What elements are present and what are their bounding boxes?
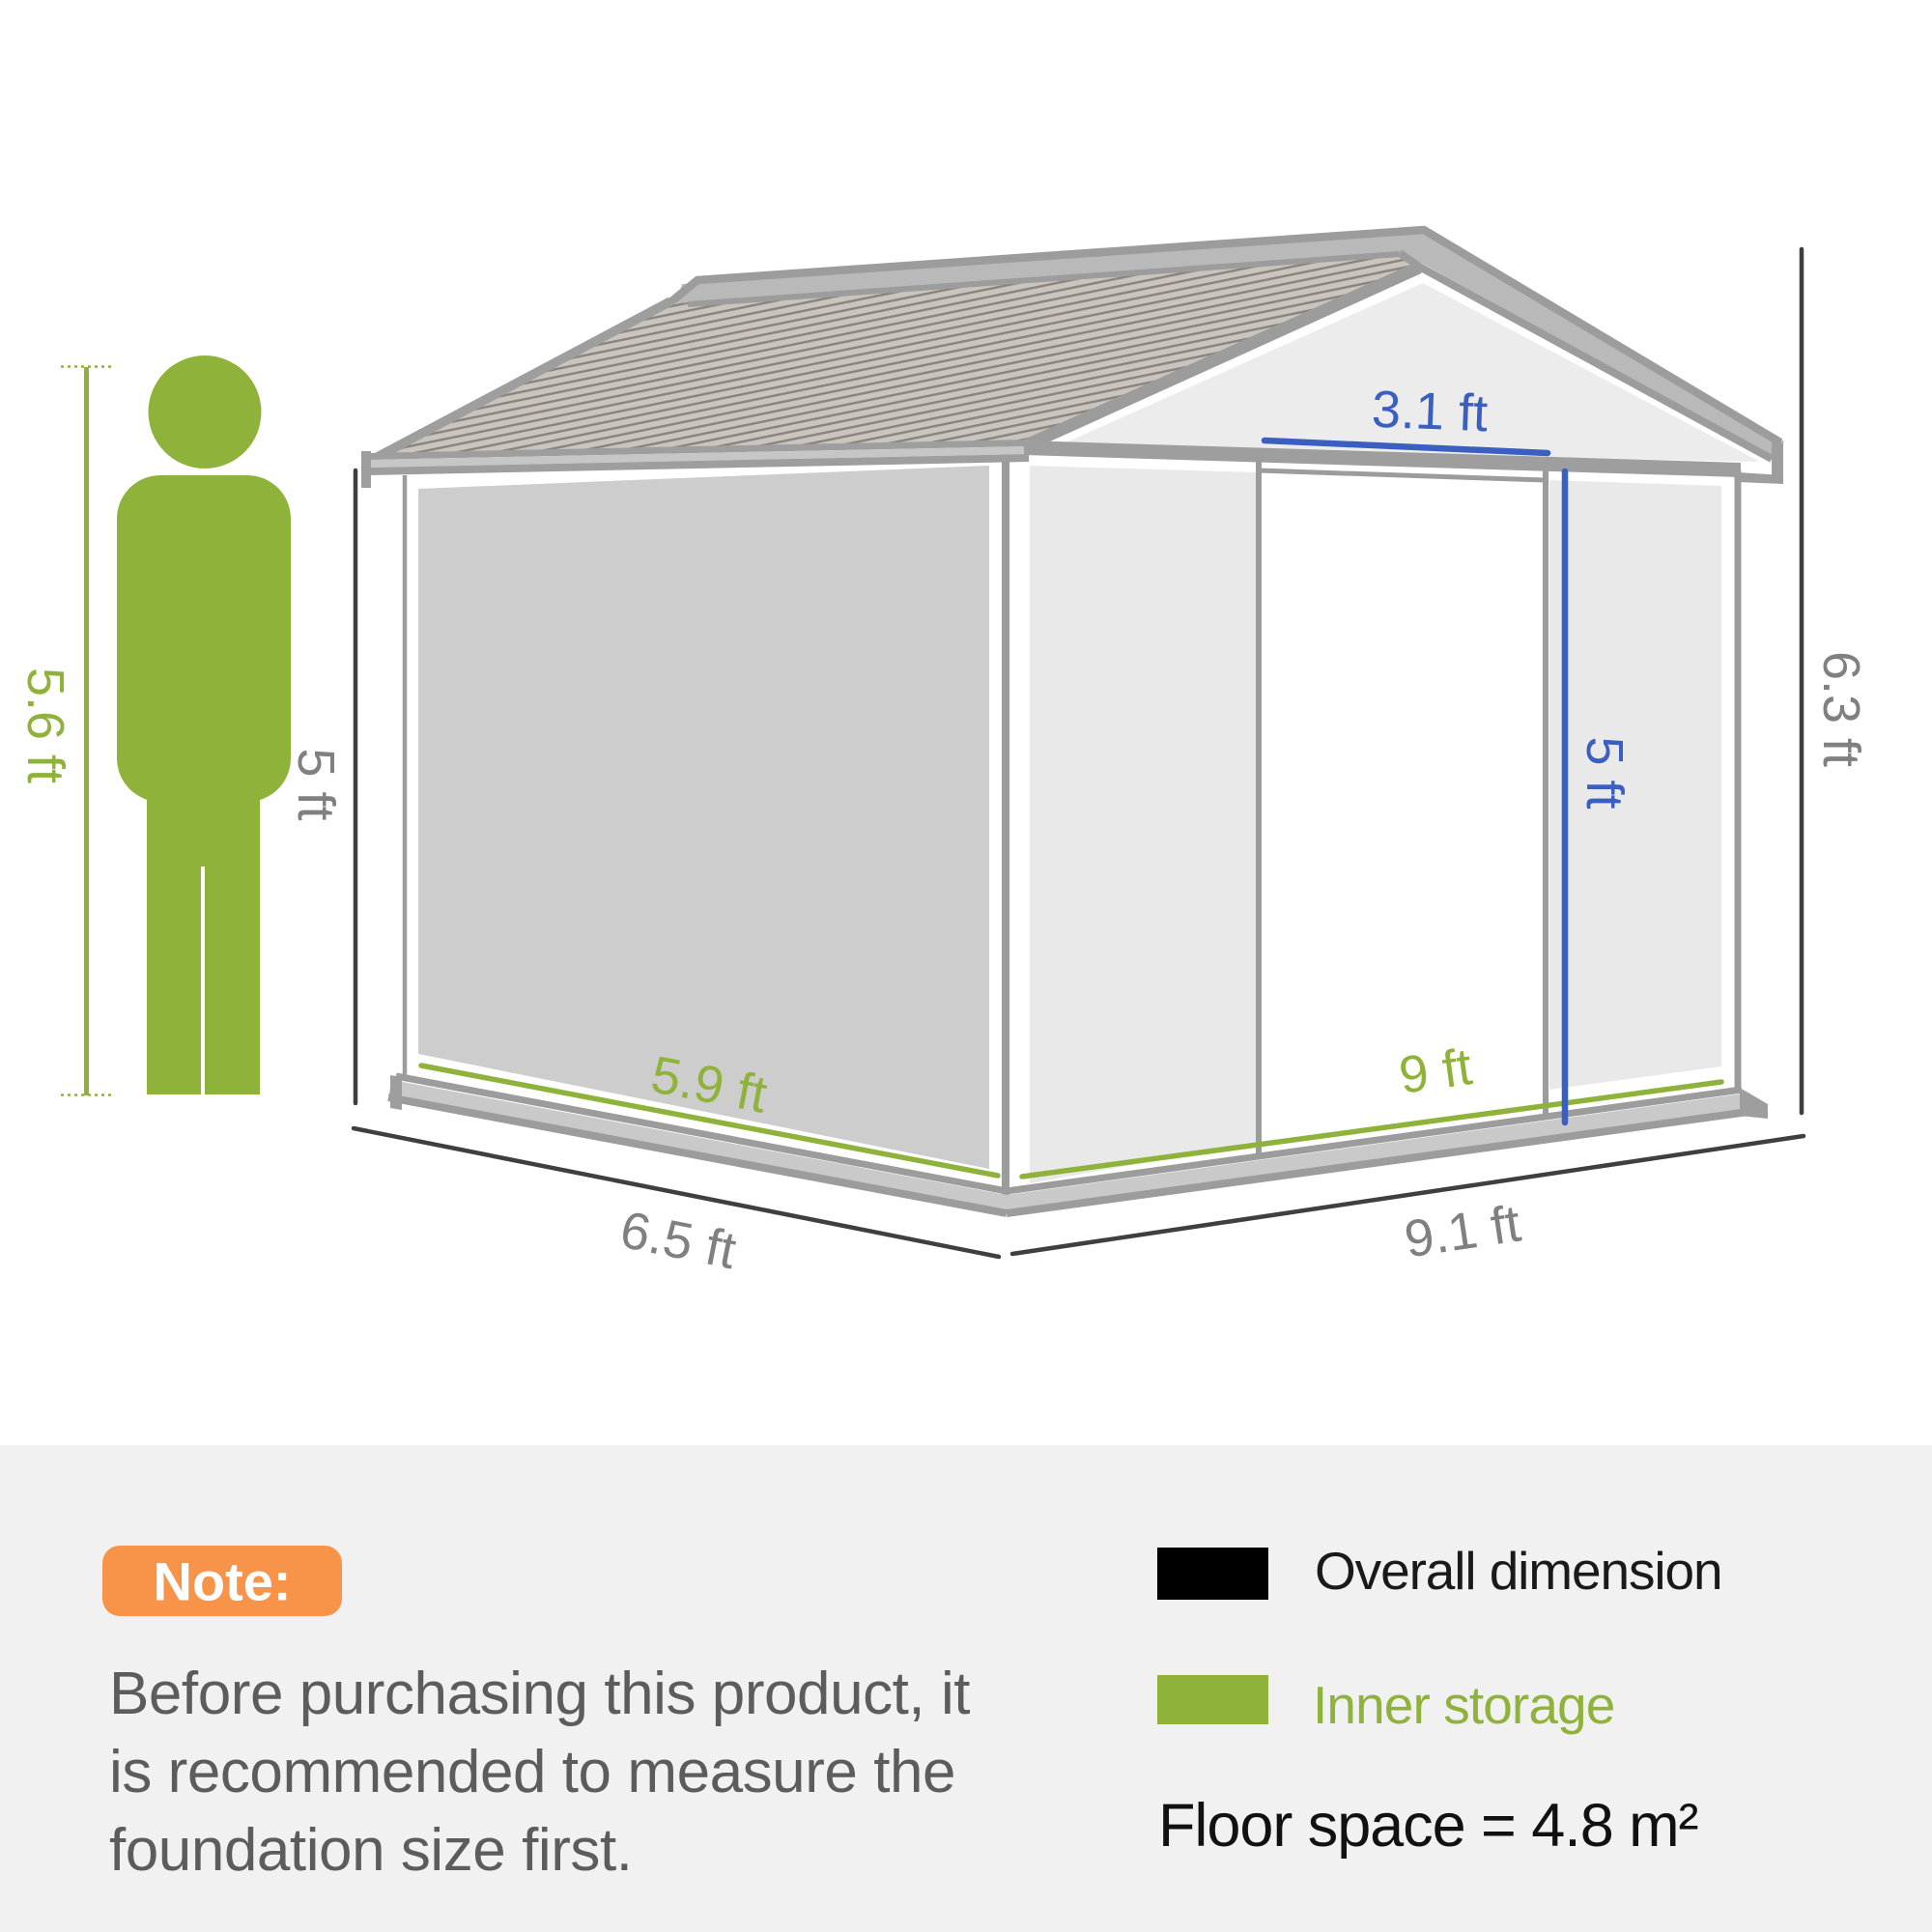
svg-text:6.3 ft: 6.3 ft xyxy=(1812,651,1870,767)
svg-text:Before purchasing this product: Before purchasing this product, it xyxy=(109,1661,970,1727)
svg-text:Floor space = 4.8 m²: Floor space = 4.8 m² xyxy=(1158,1792,1698,1860)
svg-text:Overall dimension: Overall dimension xyxy=(1315,1541,1722,1601)
svg-text:Inner storage: Inner storage xyxy=(1313,1675,1614,1735)
svg-text:9 ft: 9 ft xyxy=(1396,1037,1475,1105)
svg-text:Note:: Note: xyxy=(153,1551,291,1612)
svg-text:3.1 ft: 3.1 ft xyxy=(1371,381,1489,443)
svg-text:is recommended to measure the: is recommended to measure the xyxy=(109,1739,955,1805)
svg-text:5 ft: 5 ft xyxy=(287,748,345,820)
svg-text:foundation size first.: foundation size first. xyxy=(109,1817,633,1884)
svg-text:5 ft: 5 ft xyxy=(1576,736,1634,809)
svg-text:5.6 ft: 5.6 ft xyxy=(16,668,74,783)
